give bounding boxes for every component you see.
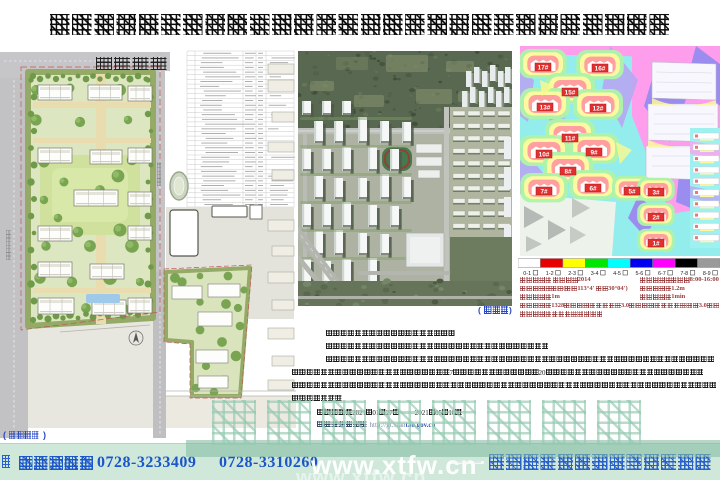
svg-text:15#: 15# <box>565 90 576 97</box>
svg-text:8#: 8# <box>564 169 572 176</box>
svg-text:17#: 17# <box>538 65 549 72</box>
svg-text:2#: 2# <box>652 215 660 222</box>
svg-text:7#: 7# <box>540 189 548 196</box>
svg-text:16#: 16# <box>595 66 606 73</box>
svg-text:11#: 11# <box>565 136 576 143</box>
svg-text:1#: 1# <box>652 241 660 248</box>
svg-text:3#: 3# <box>652 190 660 197</box>
svg-text:9#: 9# <box>590 150 598 157</box>
svg-text:10#: 10# <box>539 152 550 159</box>
svg-text:5#: 5# <box>628 189 636 196</box>
svg-text:6#: 6# <box>589 186 597 193</box>
svg-text:4-5: 4-5 <box>613 271 621 277</box>
svg-text:12#: 12# <box>593 106 604 113</box>
svg-text:13#: 13# <box>540 105 551 112</box>
svg-text:3-4: 3-4 <box>591 271 599 277</box>
